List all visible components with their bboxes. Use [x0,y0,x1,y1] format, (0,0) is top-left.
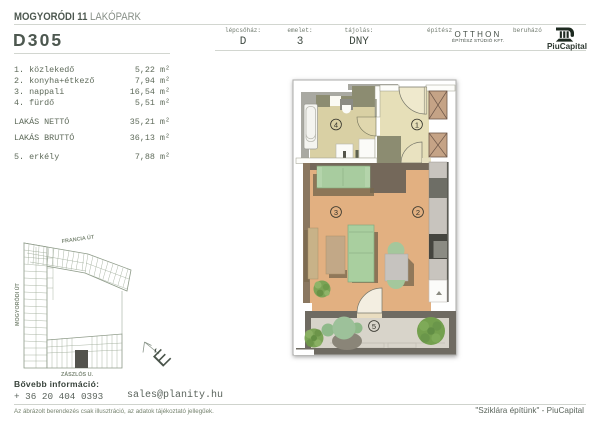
svg-text:MOGYORÓDI ÚT: MOGYORÓDI ÚT [13,282,21,326]
svg-text:FRANCIA ÚT: FRANCIA ÚT [61,233,95,245]
svg-text:5: 5 [372,322,376,331]
svg-text:4: 4 [334,120,338,129]
svg-text:3: 3 [334,208,338,217]
svg-text:ZÁSZLÓS U.: ZÁSZLÓS U. [61,370,94,378]
svg-text:1: 1 [415,120,419,129]
svg-text:2: 2 [416,208,420,217]
